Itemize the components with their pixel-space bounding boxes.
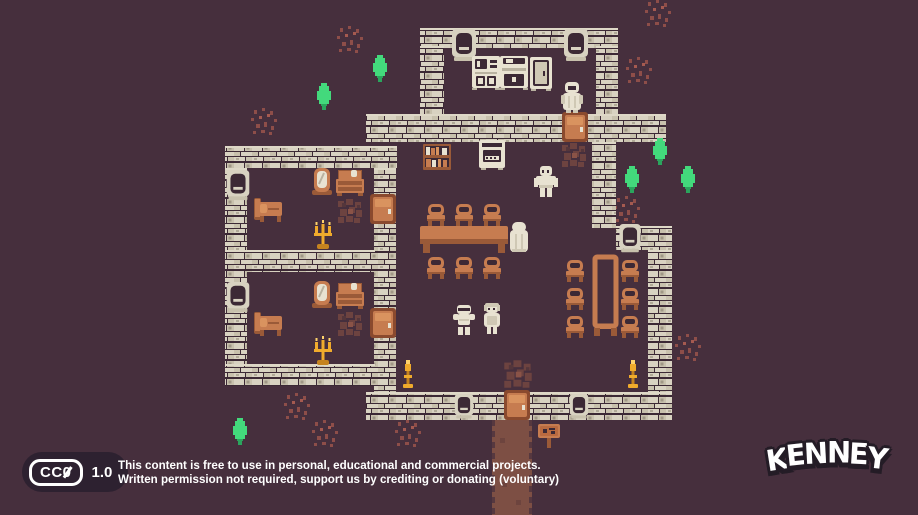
- wall-cap: [648, 250, 672, 252]
- wall-cap: [420, 28, 618, 30]
- window: [227, 170, 250, 200]
- plant-decor: [251, 108, 277, 135]
- wall-segment: [648, 250, 672, 394]
- woman-character: [484, 303, 500, 334]
- wall-segment: [225, 364, 375, 386]
- dresser: [336, 170, 364, 196]
- license-line-1: This content is free to use in personal,…: [118, 459, 559, 473]
- counter: [500, 56, 528, 90]
- plant-decor: [312, 420, 338, 447]
- wall-segment: [420, 46, 444, 116]
- plant-decor: [645, 0, 671, 27]
- plant-decor: [337, 26, 363, 53]
- wall-segment: [225, 168, 247, 386]
- logo-letter: N: [827, 436, 849, 470]
- candelabra: [314, 220, 332, 249]
- wall-segment: [225, 146, 397, 168]
- bed: [254, 198, 282, 222]
- door: [370, 308, 396, 338]
- license-line-2: Written permission not required, support…: [118, 473, 559, 487]
- dresser: [336, 283, 364, 309]
- chair: [455, 204, 473, 226]
- license-version: 1.0: [92, 464, 113, 481]
- chair: [566, 316, 584, 338]
- dirt-patch: [562, 143, 586, 167]
- chair: [621, 260, 639, 282]
- plant-decor: [395, 420, 421, 447]
- plant-decor: [675, 334, 701, 361]
- wall-segment: [592, 142, 616, 228]
- wall-cap: [596, 46, 618, 48]
- license-text: This content is free to use in personal,…: [118, 459, 559, 486]
- candle: [403, 360, 413, 388]
- wall-segment: [420, 28, 618, 48]
- wall-cap: [374, 168, 396, 170]
- chair: [566, 288, 584, 310]
- tablev: [594, 257, 617, 336]
- cc0-badge: CC0 1.0: [22, 452, 128, 492]
- window: [227, 282, 250, 312]
- wall-cap: [225, 250, 375, 252]
- logo-letter: Y: [865, 440, 888, 476]
- dirt-patch: [504, 360, 531, 387]
- chair: [621, 288, 639, 310]
- tree: [233, 418, 247, 445]
- monk-character: [561, 82, 583, 113]
- tree: [681, 166, 695, 193]
- wall-cap: [225, 364, 375, 366]
- wall-segment: [366, 114, 666, 142]
- villager-character: [534, 166, 558, 197]
- dirt-patch: [338, 312, 362, 336]
- tree: [653, 138, 667, 165]
- hutch: [472, 56, 500, 90]
- scene: CC0 1.0 This content is free to use in p…: [0, 0, 918, 515]
- path-mottle: [516, 500, 521, 505]
- door: [504, 390, 530, 420]
- wall-segment: [225, 250, 375, 272]
- door: [370, 194, 396, 224]
- tree: [373, 55, 387, 82]
- bed: [254, 312, 282, 336]
- cc0-license-icon: CC0: [29, 459, 83, 486]
- wall-segment: [596, 46, 618, 116]
- chair: [621, 316, 639, 338]
- plant-decor: [626, 57, 652, 84]
- candle: [628, 360, 638, 388]
- plant-decor: [284, 393, 310, 420]
- window: [455, 394, 473, 418]
- chair: [483, 204, 501, 226]
- dirt-patch: [338, 199, 362, 223]
- path-mottle: [500, 438, 505, 443]
- chair: [455, 257, 473, 279]
- tree: [625, 166, 639, 193]
- kenney-logo: KENNEY: [765, 434, 886, 472]
- candelabra: [314, 336, 332, 365]
- stove: [479, 140, 505, 170]
- plant-decor: [614, 196, 640, 223]
- logo-letter: N: [803, 436, 827, 471]
- bookshelf: [423, 144, 451, 170]
- wall-cap: [225, 146, 397, 148]
- window: [564, 29, 588, 61]
- window: [570, 394, 588, 418]
- wall-cap: [592, 142, 616, 144]
- logo-letter: E: [848, 436, 868, 471]
- chair: [427, 204, 445, 226]
- wall-cap: [420, 46, 444, 48]
- tree: [317, 83, 331, 110]
- chair: [427, 257, 445, 279]
- wall-cap: [366, 114, 666, 116]
- mirror: [312, 281, 332, 308]
- mirror: [312, 168, 332, 195]
- wall-cap: [225, 168, 247, 170]
- window: [452, 29, 476, 61]
- door: [562, 112, 588, 142]
- chair: [483, 257, 501, 279]
- sign: [538, 424, 560, 448]
- window: [619, 224, 640, 252]
- cupboard: [530, 57, 552, 91]
- chair: [566, 260, 584, 282]
- tableh: [420, 226, 508, 253]
- knight-character: [453, 305, 475, 335]
- hooded-character: [510, 222, 528, 252]
